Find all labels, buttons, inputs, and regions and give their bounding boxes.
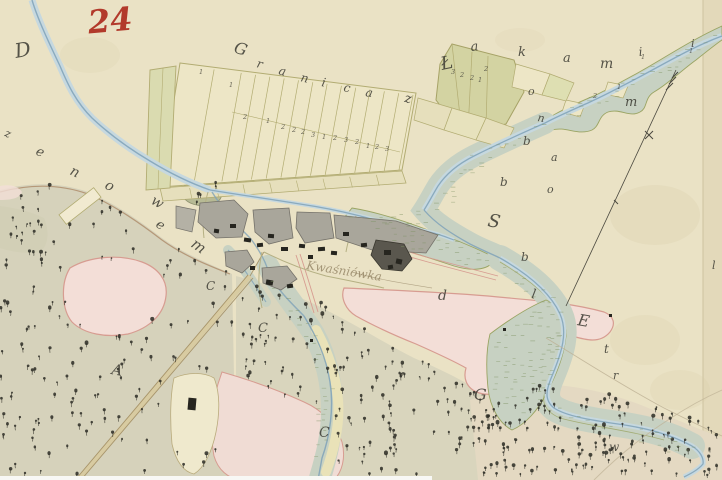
boundary-stone [609,314,612,317]
parcel-number: 1 [617,83,621,91]
parcel-number: 1 [641,53,645,61]
building [299,244,305,249]
parcel-number: 2 [592,92,597,100]
map-letter: t [604,342,609,356]
map-letter: m [625,95,637,110]
boundary-stone [310,339,313,342]
parcel-number: 2 [291,126,296,134]
building [388,265,394,270]
parcel-number: 3 [385,145,389,153]
map-letter: k [518,45,526,60]
map-letter: a [563,51,571,66]
map-letter: a [470,39,479,55]
parcel-number: 2 [374,143,379,151]
map-letter: G [474,385,487,404]
parcel-number: 1 [229,81,233,89]
parcel-number: 2 [242,113,247,121]
map-letter: C [258,321,268,336]
building [250,266,255,270]
map-letter: l [712,259,716,272]
map-sheet: GranicazŁakamimizDenowemonbaobSblEtrwdGC… [0,0,722,480]
parcel-number: 1 [266,117,270,125]
parcel-number: 1 [322,133,326,141]
lone-building [187,398,196,411]
parcel-number: 2 [469,74,474,82]
building [331,251,337,256]
map-letter: d [438,288,447,304]
farmyard [176,206,196,232]
map-canvas: GranicazŁakamimizDenowemonbaobSblEtrwdGC… [0,0,722,480]
boundary-stone [503,328,506,331]
parcel-number: 2 [300,128,305,136]
map-letter: m [600,56,613,72]
building [287,284,293,289]
building [257,243,263,248]
map-letter: a [551,151,558,164]
scan-edge-strip [0,476,432,480]
parcel-number: 3 [451,68,455,76]
parcel-number: 3 [344,136,348,144]
parcel-number: 1 [689,47,693,55]
map-letter: b [523,134,531,148]
building [268,234,274,238]
building [343,232,349,236]
map-letter: o [528,85,535,98]
parcel-number: 1 [366,142,370,150]
parcel-number: 2 [354,138,359,146]
parcel-number: 1 [199,68,203,76]
building [214,229,220,234]
building [281,247,288,251]
map-letter: b [500,175,508,189]
map-letter: o [547,183,554,196]
sheet-number: 24 [85,0,134,42]
parcel-number: 2 [332,134,337,142]
map-letter: b [521,250,529,264]
building [361,243,367,248]
parcel-number: 1 [478,76,482,84]
building [230,224,236,228]
map-letter: C [319,425,330,441]
map-letter: r [613,369,619,382]
parcel-number: 2 [483,65,488,73]
building [384,250,391,255]
building [318,247,325,251]
parcel-number: 2 [459,71,464,79]
map-letter: C [206,279,215,293]
parcel-number: 3 [311,131,315,139]
map-letter: w [609,440,620,454]
parcel-number: 2 [280,123,285,131]
